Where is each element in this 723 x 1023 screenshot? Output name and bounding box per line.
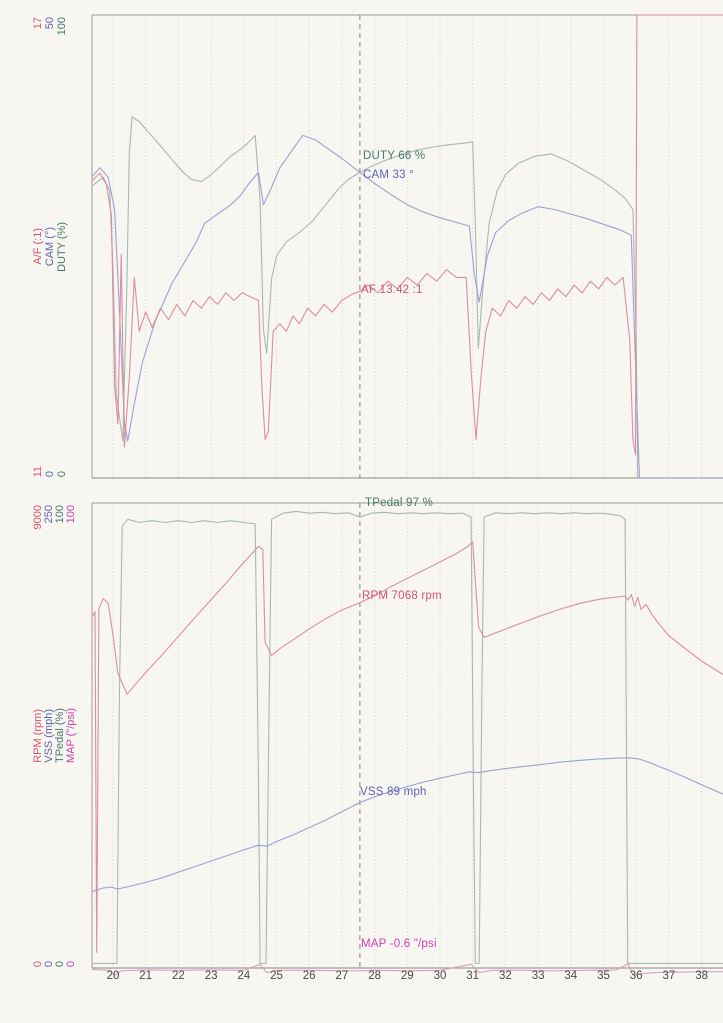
cam-cursor-value: CAM 33 ° [363,169,414,181]
map-axis-title: MAP ("/psi) [65,676,77,796]
x-tick-label-31: 31 [466,970,479,982]
x-tick-label-33: 33 [532,970,545,982]
af-axis-min: 11 [32,466,44,477]
x-tick-label-30: 30 [434,970,447,982]
x-tick-label-22: 22 [172,970,185,982]
x-tick-label-20: 20 [107,970,120,982]
map-cursor-value: MAP -0.6 "/psi [361,938,437,950]
x-tick-label-25: 25 [270,970,283,982]
af-axis-max: 17 [32,17,44,29]
map-axis-min: 0 [65,961,77,967]
x-tick-label-32: 32 [499,970,512,982]
cam-axis-max: 50 [44,17,56,29]
rpm-cursor-value: RPM 7068 rpm [362,590,442,602]
x-tick-label-21: 21 [139,970,152,982]
x-tick-label-29: 29 [401,970,414,982]
cam-axis-title: CAM (°) [44,187,56,307]
map-axis-max: 100 [65,505,77,523]
x-tick-label-23: 23 [205,970,218,982]
x-tick-label-38: 38 [695,970,708,982]
duty-axis-title: DUTY (%) [56,187,68,307]
tpedal-cursor-value: TPedal 97 % [365,497,433,509]
duty-axis-max: 100 [56,17,68,35]
x-tick-label-27: 27 [335,970,348,982]
duty-axis-title-text: DUTY (%) [56,222,68,272]
af-axis-title-text: A/F (:1) [32,228,44,265]
datalog-chart-page: 1711A/F (:1)500CAM (°)1000DUTY (%)90000R… [0,0,723,1023]
cam-axis-min: 0 [44,471,56,477]
vss-trace [92,758,723,892]
af-cursor-value: AF 13.42 :1 [361,284,423,296]
x-tick-label-26: 26 [303,970,316,982]
x-tick-label-37: 37 [662,970,675,982]
x-tick-label-24: 24 [237,970,250,982]
vss-cursor-value: VSS 89 mph [360,786,427,798]
duty-axis-min: 0 [56,471,68,477]
x-tick-label-36: 36 [630,970,643,982]
cam-axis-title-text: CAM (°) [44,227,56,266]
x-tick-label-34: 34 [564,970,577,982]
af-axis-title: A/F (:1) [32,187,44,307]
chart-canvas [0,0,723,1023]
duty-cursor-value: DUTY 66 % [363,150,425,162]
map-axis-title-text: MAP ("/psi) [65,708,77,763]
x-tick-label-28: 28 [368,970,381,982]
rpm-trace [92,542,723,953]
x-tick-label-35: 35 [597,970,610,982]
